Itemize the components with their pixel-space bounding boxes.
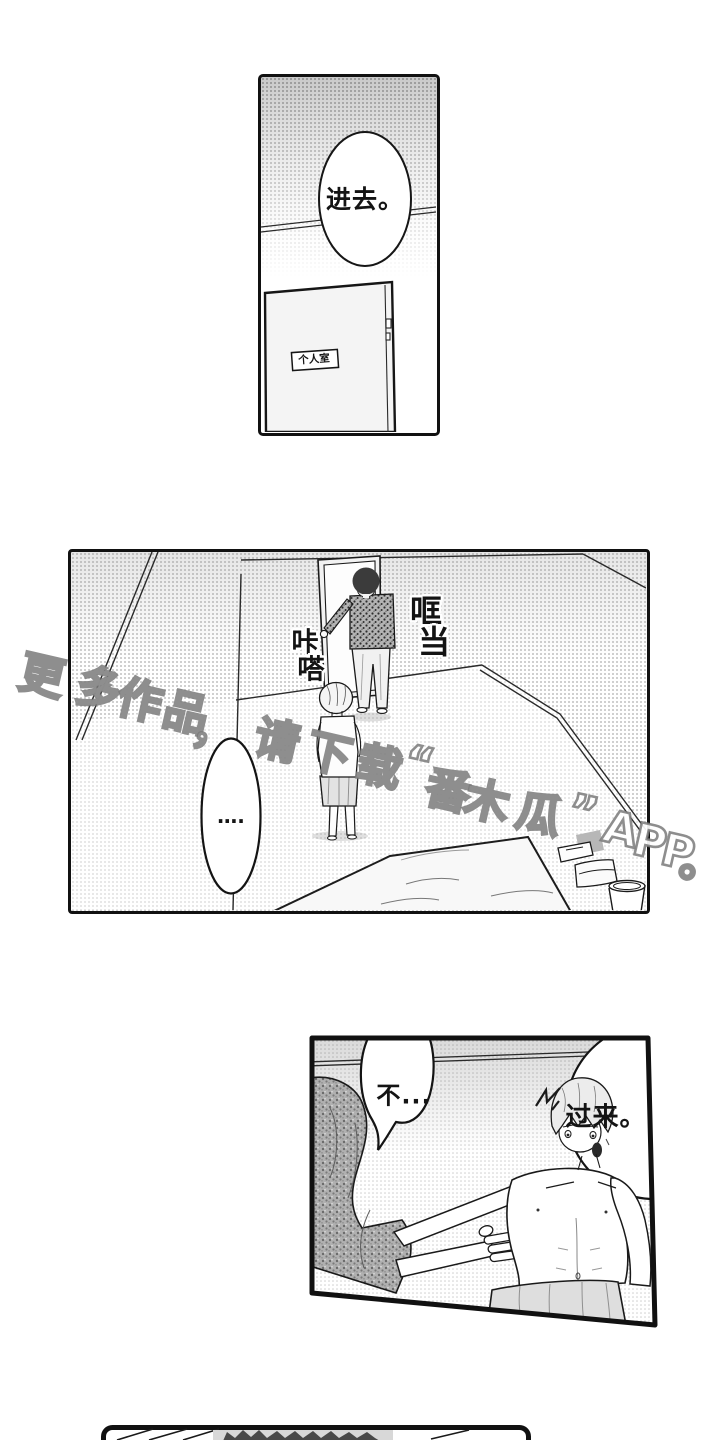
sfx-click-char2: 嗒	[298, 648, 325, 687]
blond-hair	[320, 683, 353, 714]
manga-page: { "panel1": { "bubble_text": "进去。", "doo…	[0, 0, 720, 1440]
panel-next-scene	[101, 1425, 531, 1440]
panel-room: 咔 嗒 哐 当 ….	[68, 549, 650, 914]
dark-hair	[353, 568, 380, 595]
panel-grab: 不... 过来。	[300, 1028, 660, 1334]
speech-bubble-text-no: 不...	[376, 1076, 431, 1111]
panel-next-artwork	[101, 1425, 531, 1440]
watermark-char: 更	[15, 649, 69, 703]
watermark-char: P	[657, 826, 699, 877]
door-hinge-icon	[386, 333, 390, 340]
panel-room-artwork	[71, 552, 646, 910]
speech-bubble-text-go-in: 进去。	[326, 180, 404, 216]
speech-bubble-text-come: 过来。	[565, 1097, 646, 1134]
door-sign-text: 个人室	[298, 350, 330, 367]
door-hinge-icon	[386, 319, 391, 328]
open-mouth	[592, 1143, 602, 1158]
panel-door-artwork	[261, 77, 436, 432]
sfx-clang-char2: 当	[418, 617, 450, 663]
watermark-char: 。	[676, 837, 720, 891]
panel-grab-artwork	[300, 1028, 660, 1334]
panel-door: 进去。 个人室	[258, 74, 440, 436]
bucket	[609, 881, 645, 911]
speech-bubble-text-dots: ….	[217, 804, 245, 828]
